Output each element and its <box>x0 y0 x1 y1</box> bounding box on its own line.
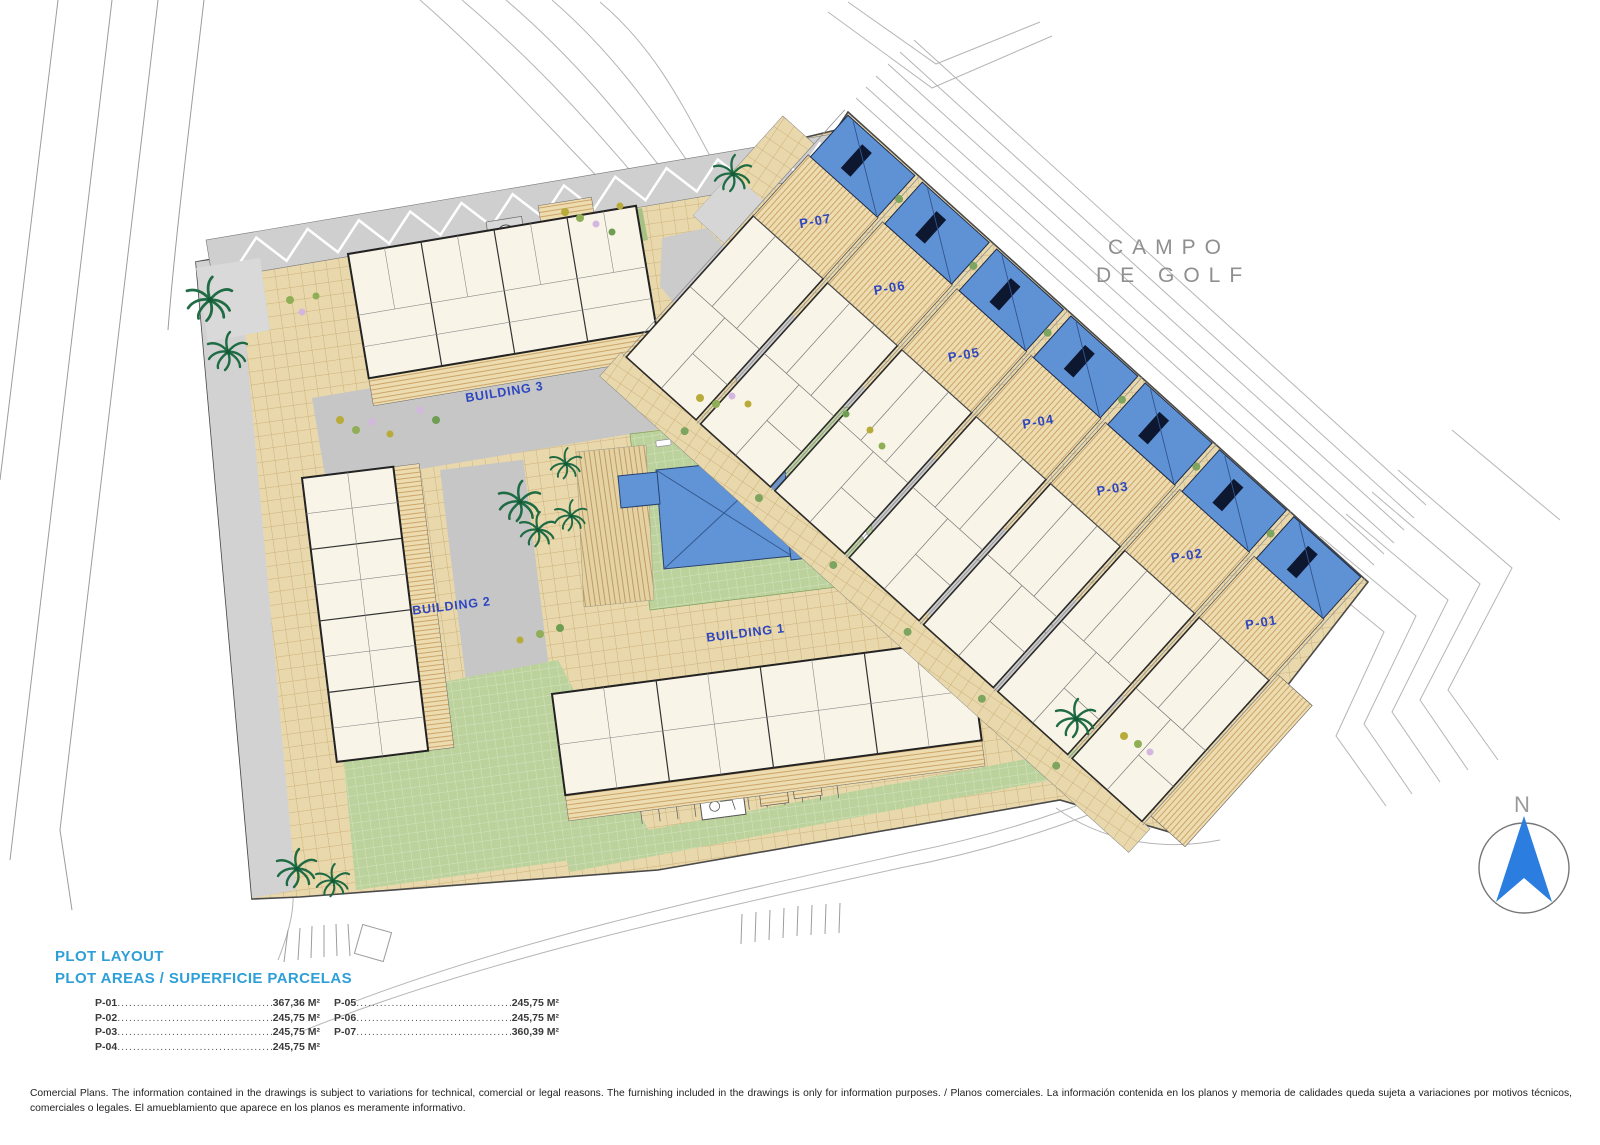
disclaimer-text: Comercial Plans. The information contain… <box>30 1086 1572 1117</box>
leader-dots <box>117 996 273 1011</box>
road-lines <box>0 0 204 910</box>
leader-dots <box>356 1025 512 1040</box>
plot-area-value: 245,75 M² <box>273 1040 320 1055</box>
plot-area-row: P-05245,75 M² <box>334 996 559 1011</box>
leader-dots <box>356 996 512 1011</box>
legend-column-1: P-01367,36 M² P-02245,75 M² P-03245,75 M… <box>95 996 320 1054</box>
plot-area-value: 245,75 M² <box>512 996 559 1011</box>
plot-area-value: 367,36 M² <box>273 996 320 1011</box>
plot-area-row: P-02245,75 M² <box>95 1011 320 1026</box>
plot-area-row: P-03245,75 M² <box>95 1025 320 1040</box>
plot-area-row: P-06245,75 M² <box>334 1011 559 1026</box>
legend-subtitle: PLOT AREAS / SUPERFICIE PARCELAS <box>55 970 615 987</box>
plot-area-row: P-07360,39 M² <box>334 1025 559 1040</box>
plot-id: P-06 <box>334 1011 356 1026</box>
plot-area-value: 245,75 M² <box>512 1011 559 1026</box>
leader-dots <box>117 1025 273 1040</box>
plot-id: P-04 <box>95 1040 117 1055</box>
plot-area-value: 245,75 M² <box>273 1011 320 1026</box>
plot-id: P-07 <box>334 1025 356 1040</box>
plot-id: P-03 <box>95 1025 117 1040</box>
plot-area-row: P-01367,36 M² <box>95 996 320 1011</box>
golf-course-label-line1: CAMPO <box>1108 236 1230 260</box>
plot-area-value: 245,75 M² <box>273 1025 320 1040</box>
plot-id: P-02 <box>95 1011 117 1026</box>
plot-legend: PLOT LAYOUT PLOT AREAS / SUPERFICIE PARC… <box>55 948 615 1054</box>
legend-column-2: P-05245,75 M² P-06245,75 M² P-07360,39 M… <box>334 996 559 1054</box>
site-plan-page: P-07 P-06 P-05 P-04 P-03 P-02 P-01 BUILD… <box>0 0 1600 1145</box>
kids-pool <box>618 472 660 508</box>
plot-id: P-01 <box>95 996 117 1011</box>
legend-title: PLOT LAYOUT <box>55 948 615 965</box>
pool-deck <box>576 445 654 607</box>
leader-dots <box>117 1011 273 1026</box>
plot-id: P-05 <box>334 996 356 1011</box>
leader-dots <box>356 1011 512 1026</box>
north-arrow <box>1479 816 1569 913</box>
leader-dots <box>117 1040 273 1055</box>
north-arrow-icon <box>1496 816 1552 902</box>
golf-course-label-line2: DE GOLF <box>1096 264 1251 288</box>
plot-area-row: P-04245,75 M² <box>95 1040 320 1055</box>
plot-area-value: 360,39 M² <box>512 1025 559 1040</box>
north-label: N <box>1514 792 1531 818</box>
